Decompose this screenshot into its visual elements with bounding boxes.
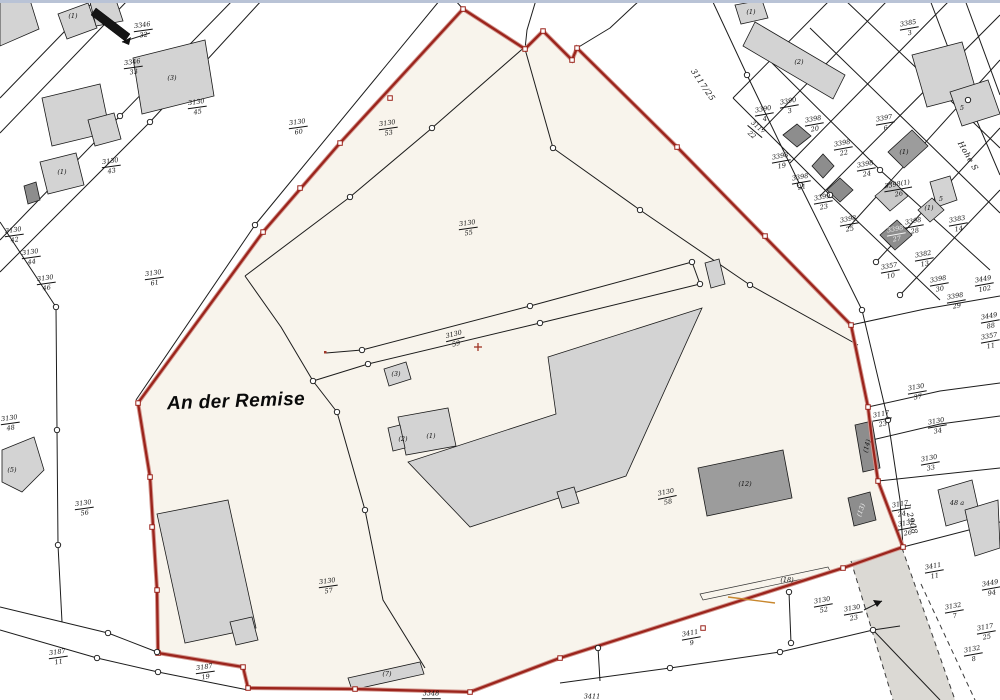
parcel-label: 334632 (133, 20, 154, 40)
parcel-label: 335710 (879, 261, 900, 282)
building-label: (1) (426, 432, 435, 440)
parcel-label: 313052 (812, 595, 833, 616)
parcel-label: 313044 (21, 247, 42, 267)
parcel-label: 339825 (838, 214, 859, 235)
building-label: (2) (794, 58, 803, 66)
parcel-label: 313045 (187, 97, 208, 117)
parcel-label: 313053 (378, 118, 399, 138)
parcel-label: 313057 (318, 576, 339, 596)
parcel-label: 335711 (979, 331, 1000, 352)
building-label: (1) (746, 8, 755, 16)
parcel-label: 339822 (832, 138, 853, 159)
parcel-label: 339830 (928, 274, 949, 295)
parcel-label: 339828 (903, 216, 924, 237)
parcel-label: 313023 (842, 603, 863, 624)
parcel-label: 318719 (195, 662, 216, 682)
parcel-label: 334633 (123, 57, 144, 77)
parcel-label: 344994 (980, 578, 1000, 599)
window-chrome-sliver (0, 0, 1000, 3)
building-label: (1) (57, 168, 66, 176)
building-label: 5 (939, 195, 943, 203)
building-label: (13) (855, 502, 867, 517)
parcel-label: 339829 (945, 291, 966, 312)
parcel-label: 338213 (913, 249, 934, 270)
parcel-label: 339923 (812, 192, 833, 213)
parcel-label: 339820 (803, 114, 824, 135)
parcel-label: 33853 (898, 18, 919, 39)
building-label: (2) (398, 435, 407, 443)
parcel-label: 33976 (874, 113, 895, 134)
building-label: (1) (68, 12, 77, 20)
parcel-label: 313058 (656, 486, 678, 507)
building-label: (1) (924, 204, 933, 212)
parcel-label: 311723 (871, 409, 892, 430)
parcel-label: 341111 (923, 561, 944, 582)
building-label: 5 (960, 104, 964, 112)
parcel-label: 313033 (919, 453, 940, 474)
parcel-label: 31327 (943, 601, 964, 622)
building-label: (14) (861, 439, 872, 454)
parcel-label: 311725 (975, 622, 996, 643)
parcel-label: 313055 (458, 218, 479, 238)
map-labels-layer: 3346323346333130453130603130433130423130… (0, 0, 1000, 700)
parcel-label: 3411 (583, 692, 602, 700)
parcel-label: 339821 (790, 172, 811, 193)
parcel-label: 33904 (753, 104, 774, 125)
parcel-label: 34119 (680, 628, 701, 649)
building-label: (3) (167, 74, 176, 82)
parcel-label: 339824 (855, 159, 876, 180)
parcel-label: 313056 (74, 498, 95, 518)
parcel-label: 313048 (0, 413, 20, 433)
parcel-label: 339819 (770, 151, 791, 172)
parcel-label: 313060 (288, 117, 309, 137)
parcel-label: 313042 (4, 225, 25, 245)
building-label: (18) (780, 576, 793, 584)
building-label: (5) (7, 466, 16, 474)
parcel-label: 3449102 (973, 274, 994, 295)
parcel-label: 338314 (947, 214, 968, 235)
parcel-label: 313034 (926, 416, 947, 437)
parcel-label: 3398(1)26 (883, 178, 913, 201)
parcel-label: 3348 (422, 689, 441, 699)
parcel-label: 33903 (778, 96, 799, 117)
parcel-label: 313046 (36, 273, 57, 293)
parcel-label: 344988 (979, 311, 1000, 332)
parcel-label: 31328 (962, 644, 983, 665)
building-label: (7) (382, 670, 391, 678)
cadastral-map-canvas[interactable]: 3346323346333130453130603130433130423130… (0, 0, 1000, 700)
parcel-label: 313043 (101, 156, 122, 176)
building-label: (3) (391, 370, 400, 378)
parcel-label: 339827 (885, 224, 906, 245)
parcel-label: 313037 (906, 382, 927, 403)
parcel-label: 318711 (48, 647, 69, 667)
parcel-label: 313059 (444, 328, 466, 350)
street-label: 3117/25 (689, 67, 717, 102)
building-label: (1) (899, 148, 908, 156)
building-label: 48 a (950, 499, 964, 507)
building-label: (12) (738, 480, 751, 488)
parcel-label: 313061 (144, 268, 165, 288)
street-label: Hohe S (956, 140, 980, 173)
